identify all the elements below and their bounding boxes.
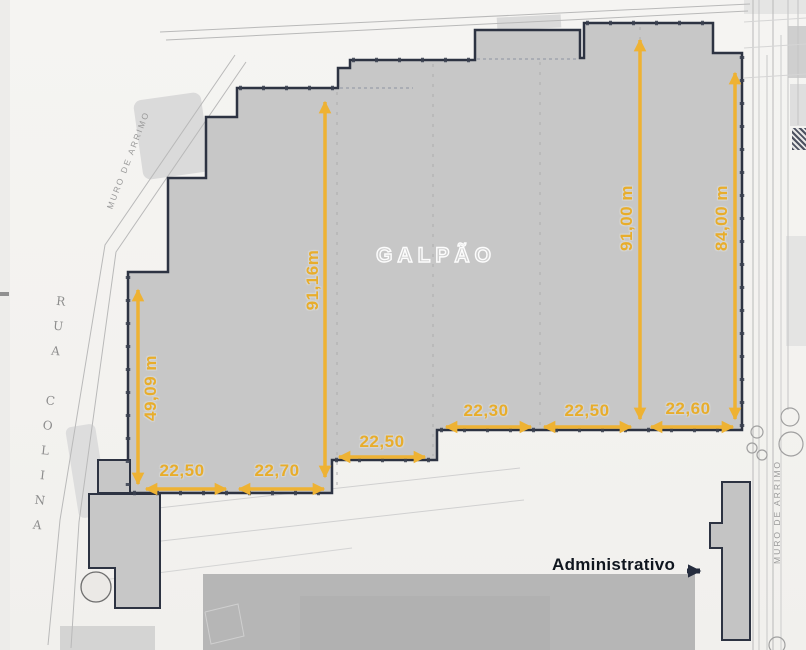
annex-square [98,460,130,493]
retaining-wall-label-right: MURO DE ARRIMO [772,460,782,564]
dim-label-bay3: 22,50 [359,432,404,452]
dim-label-bay2: 22,70 [254,461,299,481]
dim-label-91-16m: 91,16m [303,250,323,311]
dim-label-49m: 49,09 m [141,355,161,421]
warehouse-title: GALPÃO [376,244,496,268]
admin-label: Administrativo [552,555,675,575]
dim-label-bay4: 22,30 [463,401,508,421]
dim-label-bay5: 22,50 [564,401,609,421]
dim-label-91m: 91,00 m [617,185,637,251]
admin-building [710,482,750,640]
water-tank [81,572,111,602]
dim-label-bay6: 22,60 [665,399,710,419]
dim-label-84m: 84,00 m [712,185,732,251]
parking-structure [205,604,244,644]
site-plan: GALPÃO 49,09 m 91,16m 91,00 m 84,00 m 22… [0,0,806,650]
dim-label-bay1: 22,50 [159,461,204,481]
plan-drawing [0,0,806,650]
